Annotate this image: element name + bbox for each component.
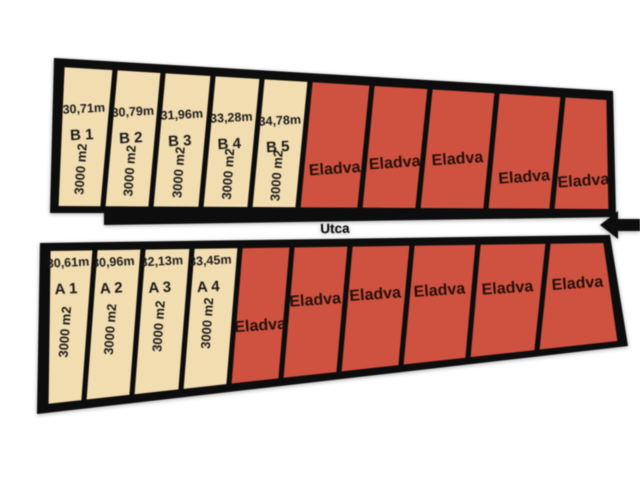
plot-width-label: 30,79m bbox=[111, 104, 154, 120]
sold-label: Eladva bbox=[551, 274, 604, 295]
plot-sold: Eladva bbox=[301, 82, 370, 207]
plot-width-label: 32,13m bbox=[140, 253, 183, 269]
sold-plot-shape bbox=[471, 244, 546, 357]
sold-plot-shape bbox=[421, 90, 495, 209]
plot-sold: Eladva bbox=[342, 246, 410, 372]
sold-label: Eladva bbox=[481, 278, 534, 299]
plot-width-label: 30,61m bbox=[47, 255, 90, 271]
plot-id-label: B 1 bbox=[70, 126, 94, 144]
sold-label: Eladva bbox=[431, 149, 484, 170]
plot-id-label: A 4 bbox=[196, 278, 220, 296]
site-plan-map: 30,71mB 13000 m230,79mB 23000 m231,96mB … bbox=[0, 0, 640, 480]
plot-sold: Eladva bbox=[404, 245, 476, 365]
plot-sold: Eladva bbox=[421, 90, 495, 209]
sold-label: Eladva bbox=[368, 153, 421, 174]
sold-label: Eladva bbox=[349, 284, 402, 305]
plot-id-label: A 1 bbox=[54, 280, 78, 298]
plot-sold: Eladva bbox=[471, 244, 546, 357]
plot-sold: Eladva bbox=[489, 94, 561, 209]
top-row-block: 30,71mB 13000 m230,79mB 23000 m231,96mB … bbox=[50, 58, 616, 225]
plot-width-label: 33,45m bbox=[189, 252, 232, 268]
plot-width-label: 30,71m bbox=[62, 101, 105, 117]
sold-label: Eladva bbox=[557, 171, 610, 192]
plot-id-label: B 2 bbox=[119, 129, 143, 147]
plot-id-label: A 2 bbox=[99, 279, 123, 297]
sold-label: Eladva bbox=[413, 280, 466, 301]
bottom-row-block: 30,61mA 13000 m230,96mA 23000 m232,13mA … bbox=[37, 235, 628, 414]
plot-width-label: 30,96m bbox=[92, 254, 135, 270]
sold-plot-shape bbox=[404, 245, 476, 365]
plot-width-label: 34,78m bbox=[258, 113, 301, 129]
sold-plot-shape bbox=[301, 82, 370, 207]
street-label: Utca bbox=[320, 221, 350, 237]
sold-label: Eladva bbox=[234, 316, 287, 337]
plot-width-label: 33,28m bbox=[210, 110, 253, 126]
plot-id-label: A 3 bbox=[148, 279, 172, 297]
plot-width-label: 31,96m bbox=[160, 107, 203, 123]
sold-plot-shape bbox=[342, 246, 410, 372]
sold-label: Eladva bbox=[289, 290, 342, 311]
sold-plot-shape bbox=[489, 94, 561, 209]
sold-label: Eladva bbox=[308, 159, 361, 180]
plot-map-svg: 30,71mB 13000 m230,79mB 23000 m231,96mB … bbox=[0, 0, 640, 480]
sold-label: Eladva bbox=[498, 167, 551, 188]
